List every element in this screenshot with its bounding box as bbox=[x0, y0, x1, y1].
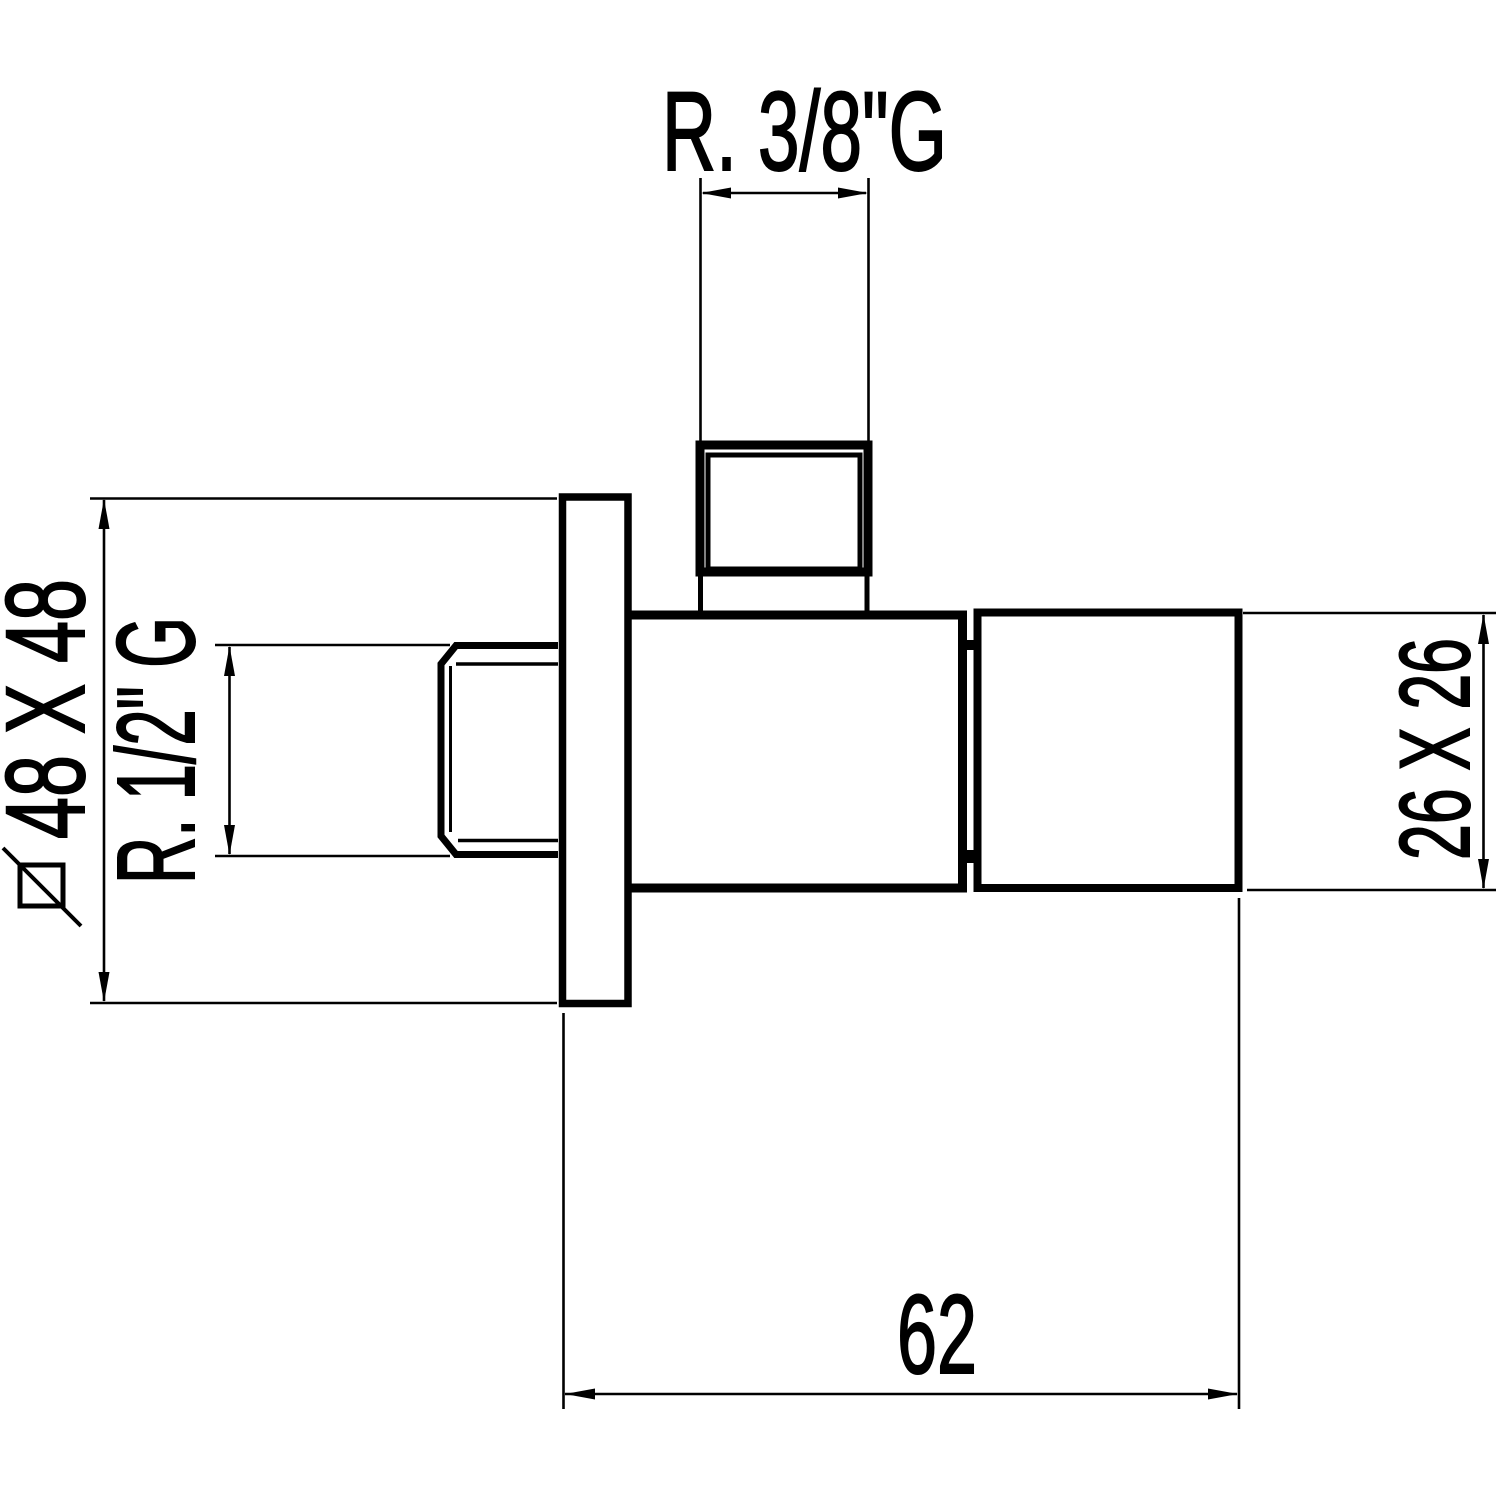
svg-text:26 X 26: 26 X 26 bbox=[1379, 638, 1490, 860]
svg-text:62: 62 bbox=[897, 1272, 977, 1397]
svg-text:R. 1/2" G: R. 1/2" G bbox=[95, 617, 218, 884]
svg-text:48 X 48: 48 X 48 bbox=[0, 579, 108, 839]
svg-text:R. 3/8"G: R. 3/8"G bbox=[662, 69, 947, 194]
